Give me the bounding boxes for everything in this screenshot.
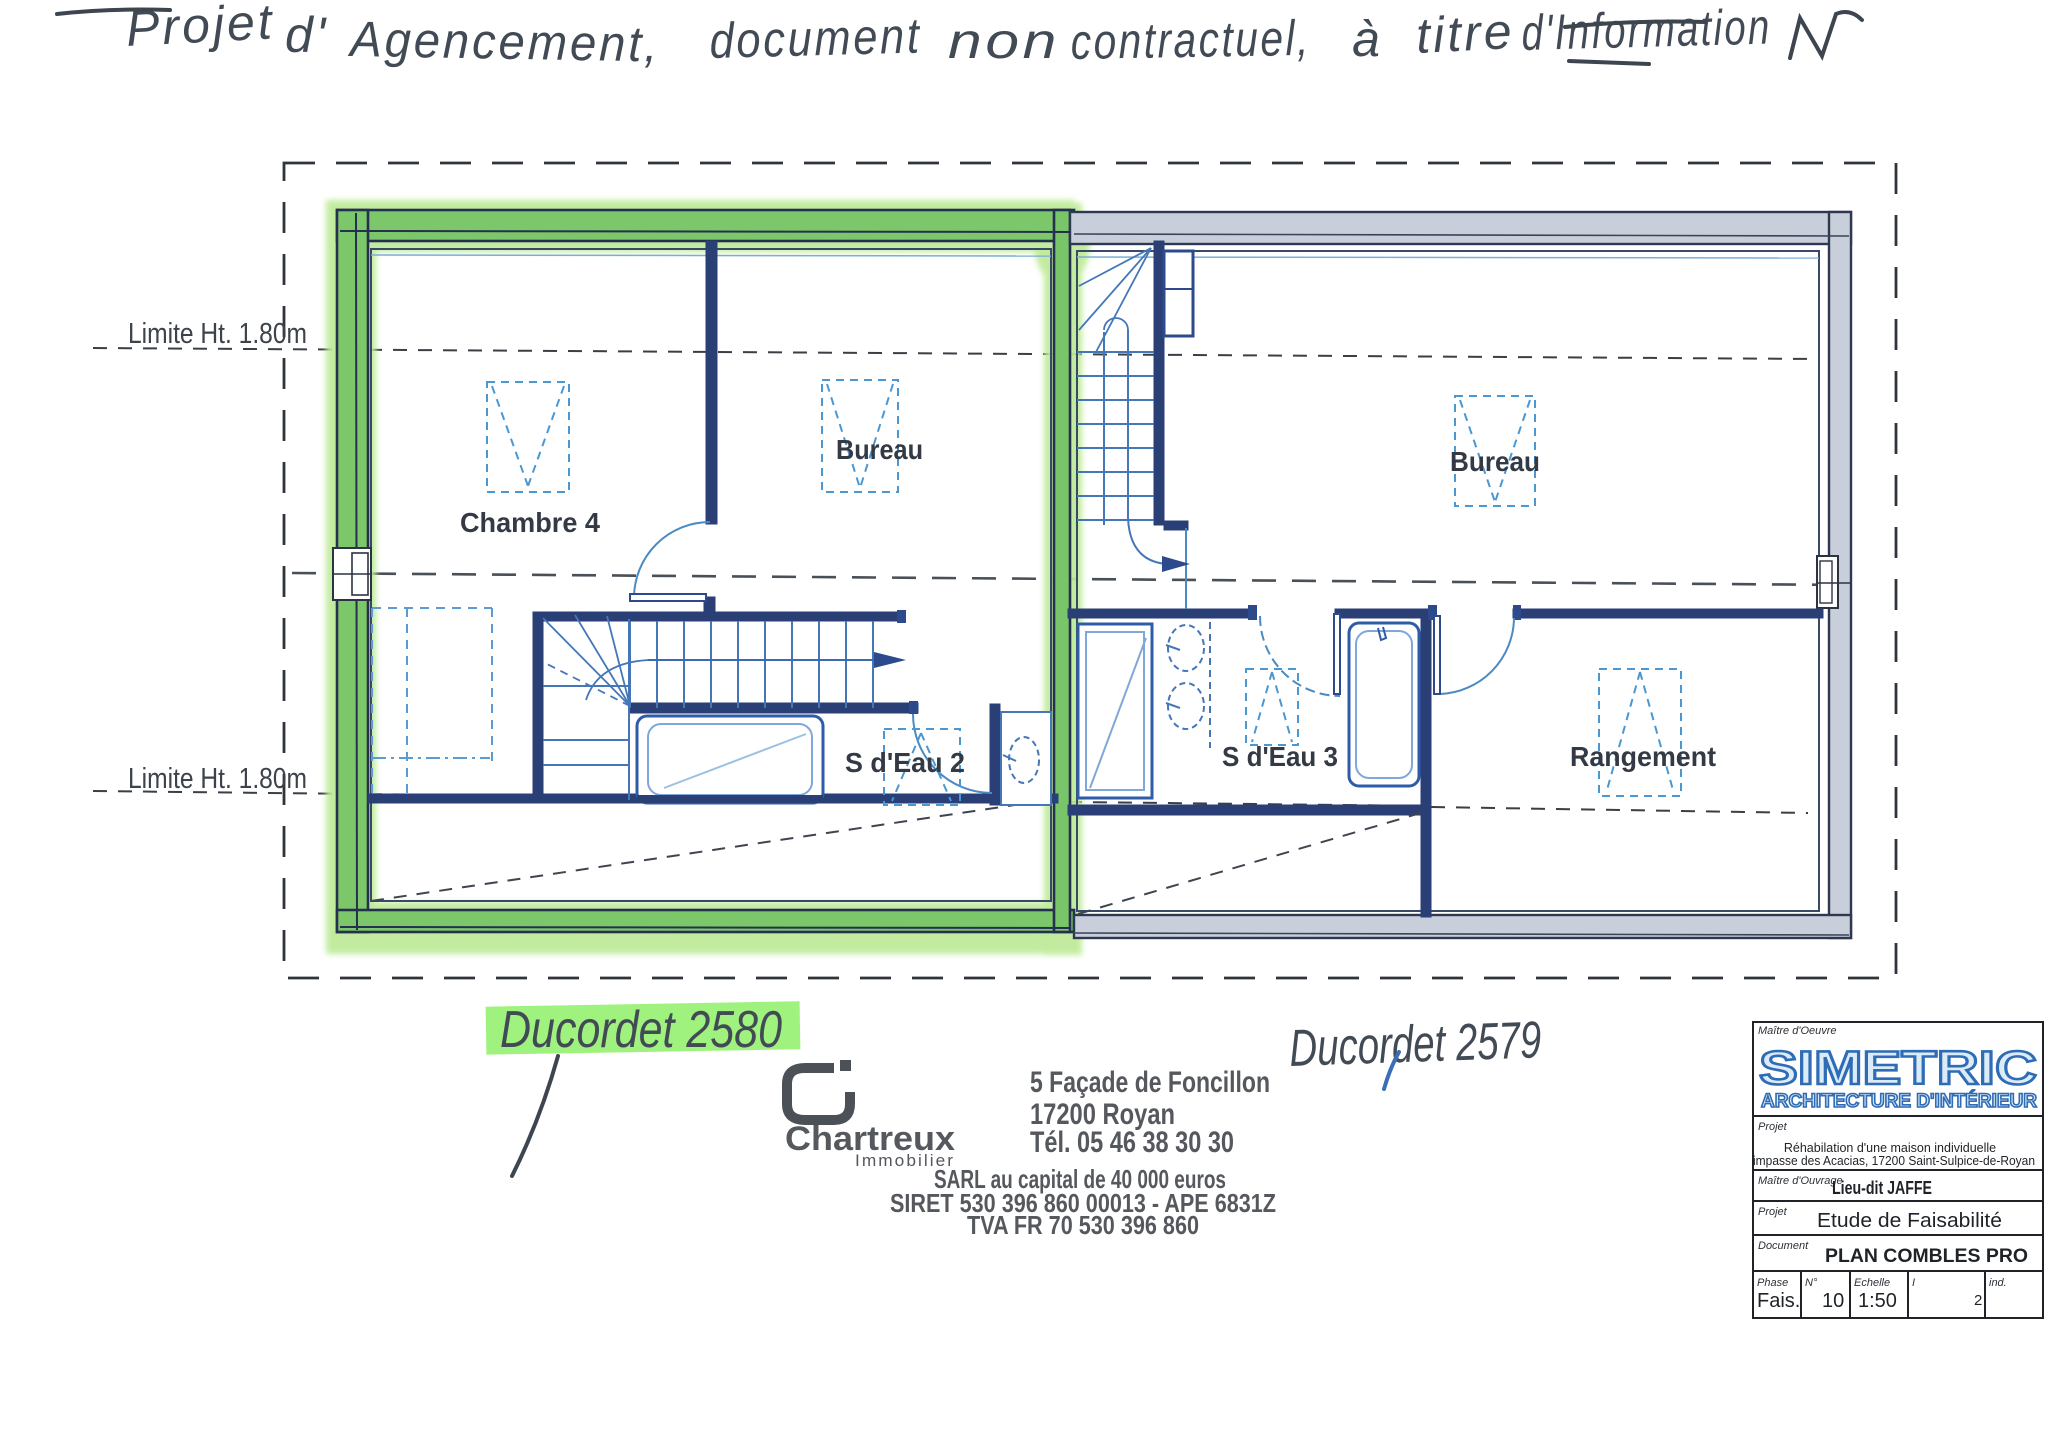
svg-text:impasse des Acacias, 17200 Sai: impasse des Acacias, 17200 Saint-Sulpice…	[1753, 1154, 2035, 1168]
svg-text:Chambre 4: Chambre 4	[460, 507, 600, 538]
svg-text:Agencement,: Agencement,	[347, 11, 661, 72]
svg-text:Ducordet 2580: Ducordet 2580	[500, 1001, 782, 1059]
svg-text:Fais.: Fais.	[1757, 1290, 1800, 1312]
svg-text:S d'Eau 2: S d'Eau 2	[845, 747, 965, 778]
svg-text:ind.: ind.	[1989, 1277, 2007, 1289]
svg-text:Document: Document	[1758, 1240, 1809, 1252]
svg-text:titre: titre	[1415, 3, 1516, 64]
svg-text:Lieu-dit JAFFE: Lieu-dit JAFFE	[1832, 1178, 1932, 1198]
svg-text:Réhabilation d'une maison indi: Réhabilation d'une maison individuelle	[1784, 1141, 1996, 1155]
svg-text:Projet: Projet	[1758, 1206, 1788, 1218]
svg-text:TVA FR 70 530 396 860: TVA FR 70 530 396 860	[967, 1210, 1199, 1240]
svg-text:Ducordet 2579: Ducordet 2579	[1288, 1011, 1542, 1078]
svg-text:Limite Ht. 1.80m: Limite Ht. 1.80m	[128, 763, 307, 795]
svg-text:Echelle: Echelle	[1854, 1277, 1890, 1289]
svg-text:contractuel,: contractuel,	[1070, 10, 1311, 70]
svg-text:Bureau: Bureau	[1450, 446, 1540, 477]
svg-text:2: 2	[1974, 1292, 1982, 1309]
svg-text:I: I	[1912, 1277, 1915, 1289]
svg-text:S d'Eau 3: S d'Eau 3	[1222, 741, 1338, 772]
svg-text:Bureau: Bureau	[836, 434, 923, 465]
svg-text:1:50: 1:50	[1858, 1290, 1897, 1312]
svg-text:PLAN COMBLES PRO: PLAN COMBLES PRO	[1825, 1246, 2028, 1267]
svg-text:ARCHITECTURE D'INTÉRIEUR: ARCHITECTURE D'INTÉRIEUR	[1761, 1090, 2037, 1112]
svg-text:Etude de Faisabilité: Etude de Faisabilité	[1817, 1210, 2002, 1232]
svg-text:Maître d'Oeuvre: Maître d'Oeuvre	[1758, 1025, 1837, 1037]
svg-text:5 Façade de Foncillon: 5 Façade de Foncillon	[1030, 1066, 1270, 1099]
svg-text:SIMETRIC: SIMETRIC	[1759, 1041, 2037, 1094]
svg-text:Projet: Projet	[1758, 1121, 1788, 1133]
svg-text:10: 10	[1822, 1290, 1844, 1312]
svg-text:Maître d'Ouvrage: Maître d'Ouvrage	[1758, 1175, 1843, 1187]
svg-text:Phase: Phase	[1757, 1277, 1788, 1289]
svg-text:d': d'	[285, 7, 328, 63]
svg-text:Tél. 05 46 38 30 30: Tél. 05 46 38 30 30	[1030, 1126, 1234, 1159]
svg-text:Rangement: Rangement	[1570, 741, 1716, 772]
svg-text:non: non	[948, 13, 1060, 69]
svg-text:Limite Ht. 1.80m: Limite Ht. 1.80m	[128, 318, 307, 350]
svg-text:document: document	[709, 7, 922, 69]
svg-text:N°: N°	[1805, 1277, 1818, 1289]
svg-text:d'Information: d'Information	[1521, 0, 1772, 61]
svg-text:à: à	[1352, 11, 1383, 67]
